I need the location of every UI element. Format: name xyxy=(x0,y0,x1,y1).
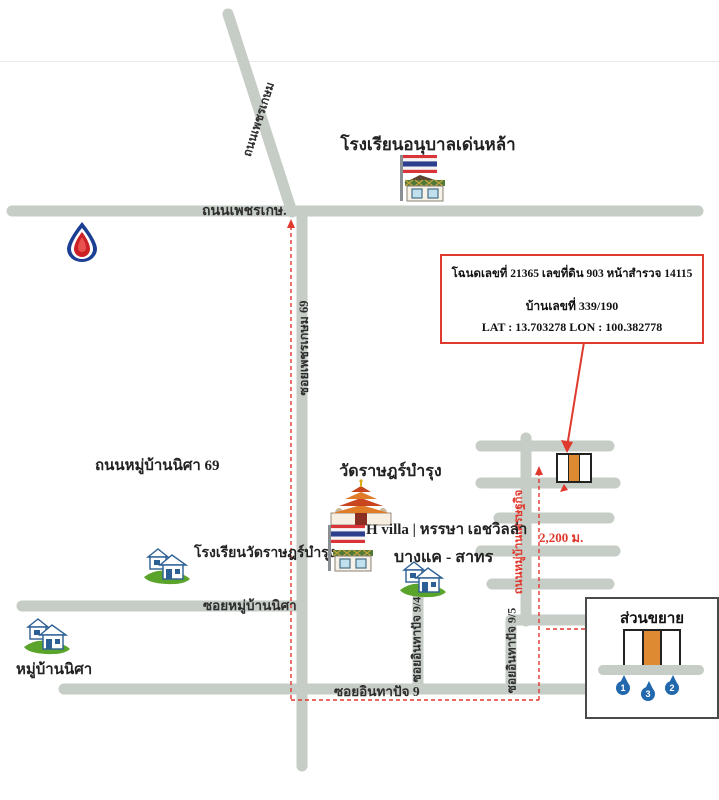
annotation-deed-line: โฉนดเลขที่ 21365 เลขที่ดิน 903 หน้าสำรวจ… xyxy=(442,265,702,283)
inset-cell-left xyxy=(625,631,644,665)
road-label-muban-nisa-69: ถนนหมู่บ้านนิศา 69 xyxy=(95,453,220,477)
kindergarten-school-icon xyxy=(392,153,448,203)
ptt-gas-station-icon xyxy=(65,221,99,263)
inset-box: ส่วนขยาย 1 3 2 xyxy=(585,597,719,719)
pin-number: 3 xyxy=(641,687,655,701)
plot-cell-right xyxy=(580,455,590,481)
inset-plot-cells xyxy=(623,629,681,667)
plot-cell-target xyxy=(569,455,580,481)
h-villa-label: H villa | หรรษา เอชวิลล่า xyxy=(366,517,527,541)
temple-school-icon xyxy=(320,521,376,575)
road-label-soi-inthapat-9-4: ซอยอินทาปัจ 9/4 xyxy=(408,585,427,695)
houses-icon-muban-nisa xyxy=(22,612,72,656)
inset-title: ส่วนขยาย xyxy=(587,606,717,630)
route-arrow-north xyxy=(287,219,295,228)
thai-flag xyxy=(403,155,437,173)
road-label-phetkasem: ถนนเพชรเกษ. xyxy=(202,200,287,222)
target-house-plot xyxy=(556,453,592,483)
muban-nisa-village-label: หมู่บ้านนิศา xyxy=(16,657,92,681)
inset-cell-target xyxy=(644,631,663,665)
route-arrow-house xyxy=(535,466,543,475)
road-label-muban-setthakit: ถนนหมู่บ้านเศรษฐกิจ xyxy=(510,467,528,617)
inset-cell-right xyxy=(662,631,679,665)
map-pin-2: 2 xyxy=(665,675,680,695)
map-pin-1: 1 xyxy=(616,675,631,695)
annotation-box: โฉนดเลขที่ 21365 เลขที่ดิน 903 หน้าสำรวจ… xyxy=(440,254,704,344)
plot-cell-left xyxy=(558,455,569,481)
road-label-soi-muban-nisa: ซอยหมู่บ้านนิศา xyxy=(203,594,297,616)
annotation-arrow xyxy=(561,342,584,453)
annotation-house-no-line: บ้านเลขที่ 339/190 xyxy=(442,297,702,316)
pin-number: 1 xyxy=(616,681,630,695)
inset-road xyxy=(598,665,704,675)
houses-icon-bangkhae xyxy=(398,555,448,599)
distance-label: 2,200 ม. xyxy=(539,527,583,548)
houses-icon-temple-school xyxy=(142,543,192,585)
annotation-latlon-line: LAT : 13.703278 LON : 100.382778 xyxy=(442,320,702,335)
map-pin-3: 3 xyxy=(641,681,656,701)
pin-number: 2 xyxy=(665,681,679,695)
temple-school-label: โรงเรียนวัดราษฎร์บำรุง xyxy=(194,542,336,564)
thai-flag xyxy=(331,525,365,543)
road-label-soi-phetkasem-69: ซอยเพชรเกษม 69 xyxy=(294,288,314,408)
map-canvas: ถนนเพชรเกษ. ถนนเพชรเกษม ซอยเพชรเกษม 69 ถ… xyxy=(0,0,719,800)
